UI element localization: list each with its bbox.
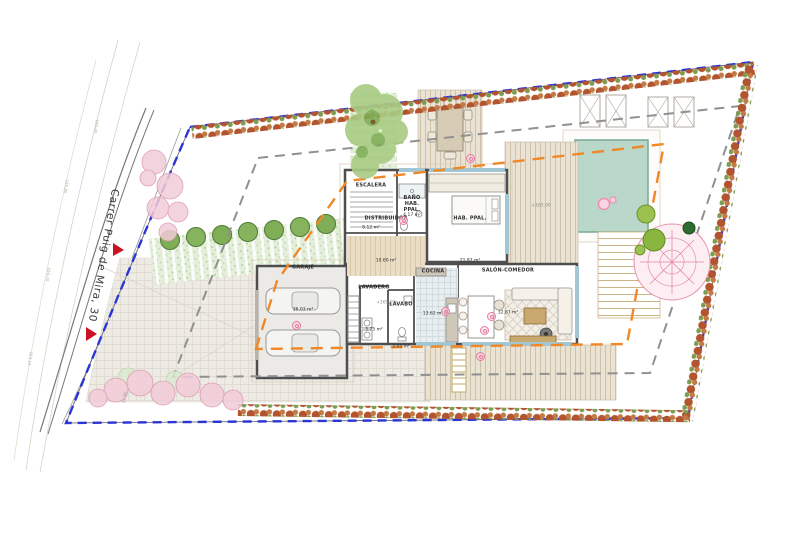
room-tag-icon bbox=[480, 326, 489, 335]
room-tag-icon bbox=[441, 307, 450, 316]
room-label-cocina: COCINA 13.62 m² bbox=[422, 233, 445, 336]
deck-steps bbox=[452, 348, 466, 392]
room-tag-icon bbox=[399, 216, 408, 225]
room-tag-icon bbox=[466, 154, 475, 163]
site-plan: Carrer Puig de Mira, 30 166.40 165.80 16… bbox=[0, 0, 800, 533]
room-tag-icon bbox=[487, 312, 496, 321]
room-label-garaje: GARAJE 36.03 m² bbox=[292, 229, 314, 332]
room-tag-icon bbox=[476, 352, 485, 361]
room-label-lavabo: LAVABO 3.05 m² bbox=[389, 266, 412, 369]
contour-lines bbox=[14, 40, 140, 472]
terrace-level-label: +165.00 bbox=[531, 203, 551, 208]
room-label-lavadero: LAVADERO 3.75 m² bbox=[358, 249, 389, 352]
pool bbox=[575, 140, 648, 232]
room-tag-icon bbox=[292, 321, 301, 330]
